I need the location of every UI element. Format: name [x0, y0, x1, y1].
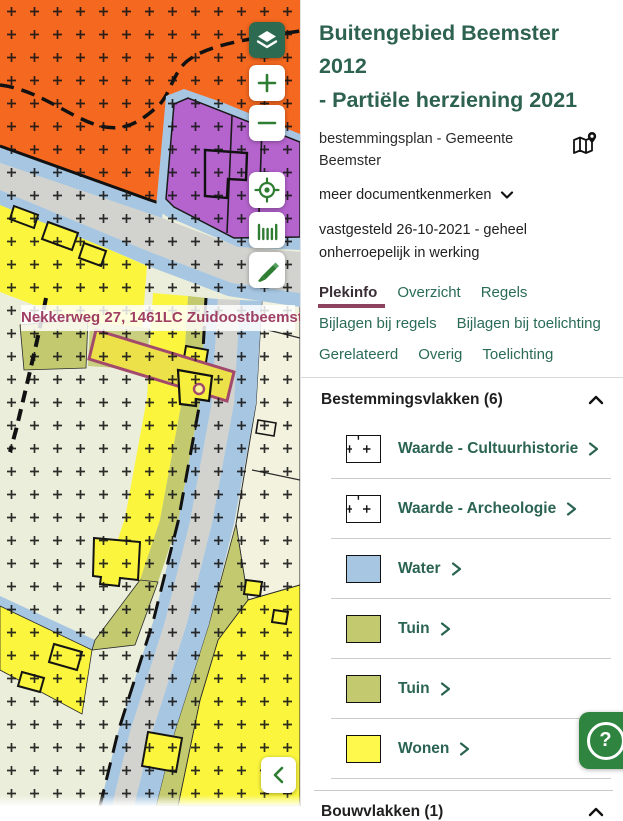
- chevron-left-icon: [266, 762, 292, 788]
- cross-pattern-swatch: [346, 495, 381, 523]
- document-panel: Buitengebied Beemster 2012 - Partiële he…: [300, 0, 623, 806]
- chevron-right-icon: [449, 561, 463, 577]
- list-item-label: Tuin: [398, 620, 430, 638]
- help-button[interactable]: ?: [579, 712, 623, 769]
- chevron-right-icon: [438, 621, 452, 637]
- plan-status: vastgesteld 26-10-2021 - geheel onherroe…: [319, 219, 569, 264]
- chevron-right-icon: [586, 441, 600, 457]
- tab-bijlagen-bij-regels[interactable]: Bijlagen bij regels: [319, 315, 437, 332]
- chevron-down-icon: [499, 187, 515, 203]
- bestemmingsvlakken-title: Bestemmingsvlakken (6): [321, 391, 503, 409]
- list-item-label: Water: [398, 560, 441, 578]
- layers-button[interactable]: [249, 22, 285, 58]
- zoom-out-button[interactable]: [249, 105, 285, 141]
- tab-overig[interactable]: Overig: [418, 346, 462, 363]
- zoom-in-button[interactable]: [249, 65, 285, 101]
- color-swatch: [346, 675, 381, 703]
- list-item-wonen[interactable]: Wonen: [319, 719, 607, 779]
- chevron-right-icon: [564, 501, 578, 517]
- color-swatch: [346, 615, 381, 643]
- chevron-up-icon[interactable]: [587, 803, 605, 821]
- measure-button[interactable]: [249, 212, 285, 248]
- color-swatch: [346, 555, 381, 583]
- tab-overzicht[interactable]: Overzicht: [397, 284, 460, 301]
- cross-pattern-swatch: [346, 435, 381, 463]
- tab-gerelateerd[interactable]: Gerelateerd: [319, 346, 398, 363]
- bestemmingsvlakken-list: Waarde - Cultuurhistorie Waarde - Archeo…: [319, 419, 607, 779]
- layers-icon: [254, 27, 280, 53]
- list-item-label: Waarde - Cultuurhistorie: [398, 440, 578, 458]
- map-bottom-fade: [0, 795, 300, 806]
- question-mark-icon: ?: [587, 722, 623, 760]
- tab-plekinfo[interactable]: Plekinfo: [319, 284, 377, 301]
- plan-subtitle: bestemmingsplan - Gemeente Beemster: [319, 129, 539, 173]
- list-item-label: Tuin: [398, 680, 430, 698]
- collapse-panel-button[interactable]: [261, 757, 296, 793]
- map-location-icon[interactable]: [571, 131, 601, 159]
- chevron-right-icon: [438, 681, 452, 697]
- list-item-tuin-1[interactable]: Tuin: [319, 599, 607, 659]
- locate-icon: [253, 176, 281, 204]
- draw-button[interactable]: [249, 252, 285, 288]
- chevron-up-icon[interactable]: [587, 391, 605, 409]
- map-viewport[interactable]: Nekkerweg 27, 1461LC Zuidoostbeemster: [0, 0, 300, 806]
- bestemmingsvlakken-header[interactable]: Bestemmingsvlakken (6): [319, 378, 607, 419]
- ruler-icon: [253, 216, 281, 244]
- color-swatch: [346, 735, 381, 763]
- more-link-label: meer documentkenmerken: [319, 187, 491, 203]
- bouwvlakken-title: Bouwvlakken (1): [321, 803, 443, 821]
- list-item-label: Waarde - Archeologie: [398, 500, 556, 518]
- more-document-properties-link[interactable]: meer documentkenmerken: [319, 187, 607, 203]
- pencil-icon: [253, 256, 281, 284]
- tab-regels[interactable]: Regels: [481, 284, 528, 301]
- list-item-waarde-archeologie[interactable]: Waarde - Archeologie: [319, 479, 607, 539]
- locate-button[interactable]: [249, 172, 285, 208]
- tab-bar: Plekinfo Overzicht Regels Bijlagen bij r…: [319, 284, 607, 363]
- list-item-waarde-cultuurhistorie[interactable]: Waarde - Cultuurhistorie: [319, 419, 607, 479]
- list-item-tuin-2[interactable]: Tuin: [319, 659, 607, 719]
- tab-toelichting[interactable]: Toelichting: [482, 346, 553, 363]
- minus-icon: [254, 110, 280, 136]
- map-address-label: Nekkerweg 27, 1461LC Zuidoostbeemster: [21, 305, 295, 331]
- plus-icon: [254, 70, 280, 96]
- page-title-line2: - Partiële herziening 2021: [319, 88, 577, 112]
- page-title: Buitengebied Beemster 2012 - Partiële he…: [319, 17, 607, 117]
- tab-bijlagen-bij-toelichting[interactable]: Bijlagen bij toelichting: [457, 315, 601, 332]
- page-title-line1: Buitengebied Beemster 2012: [319, 21, 559, 78]
- chevron-right-icon: [457, 741, 471, 757]
- list-item-water[interactable]: Water: [319, 539, 607, 599]
- list-item-label: Wonen: [398, 740, 449, 758]
- bouwvlakken-header[interactable]: Bouwvlakken (1): [319, 791, 607, 821]
